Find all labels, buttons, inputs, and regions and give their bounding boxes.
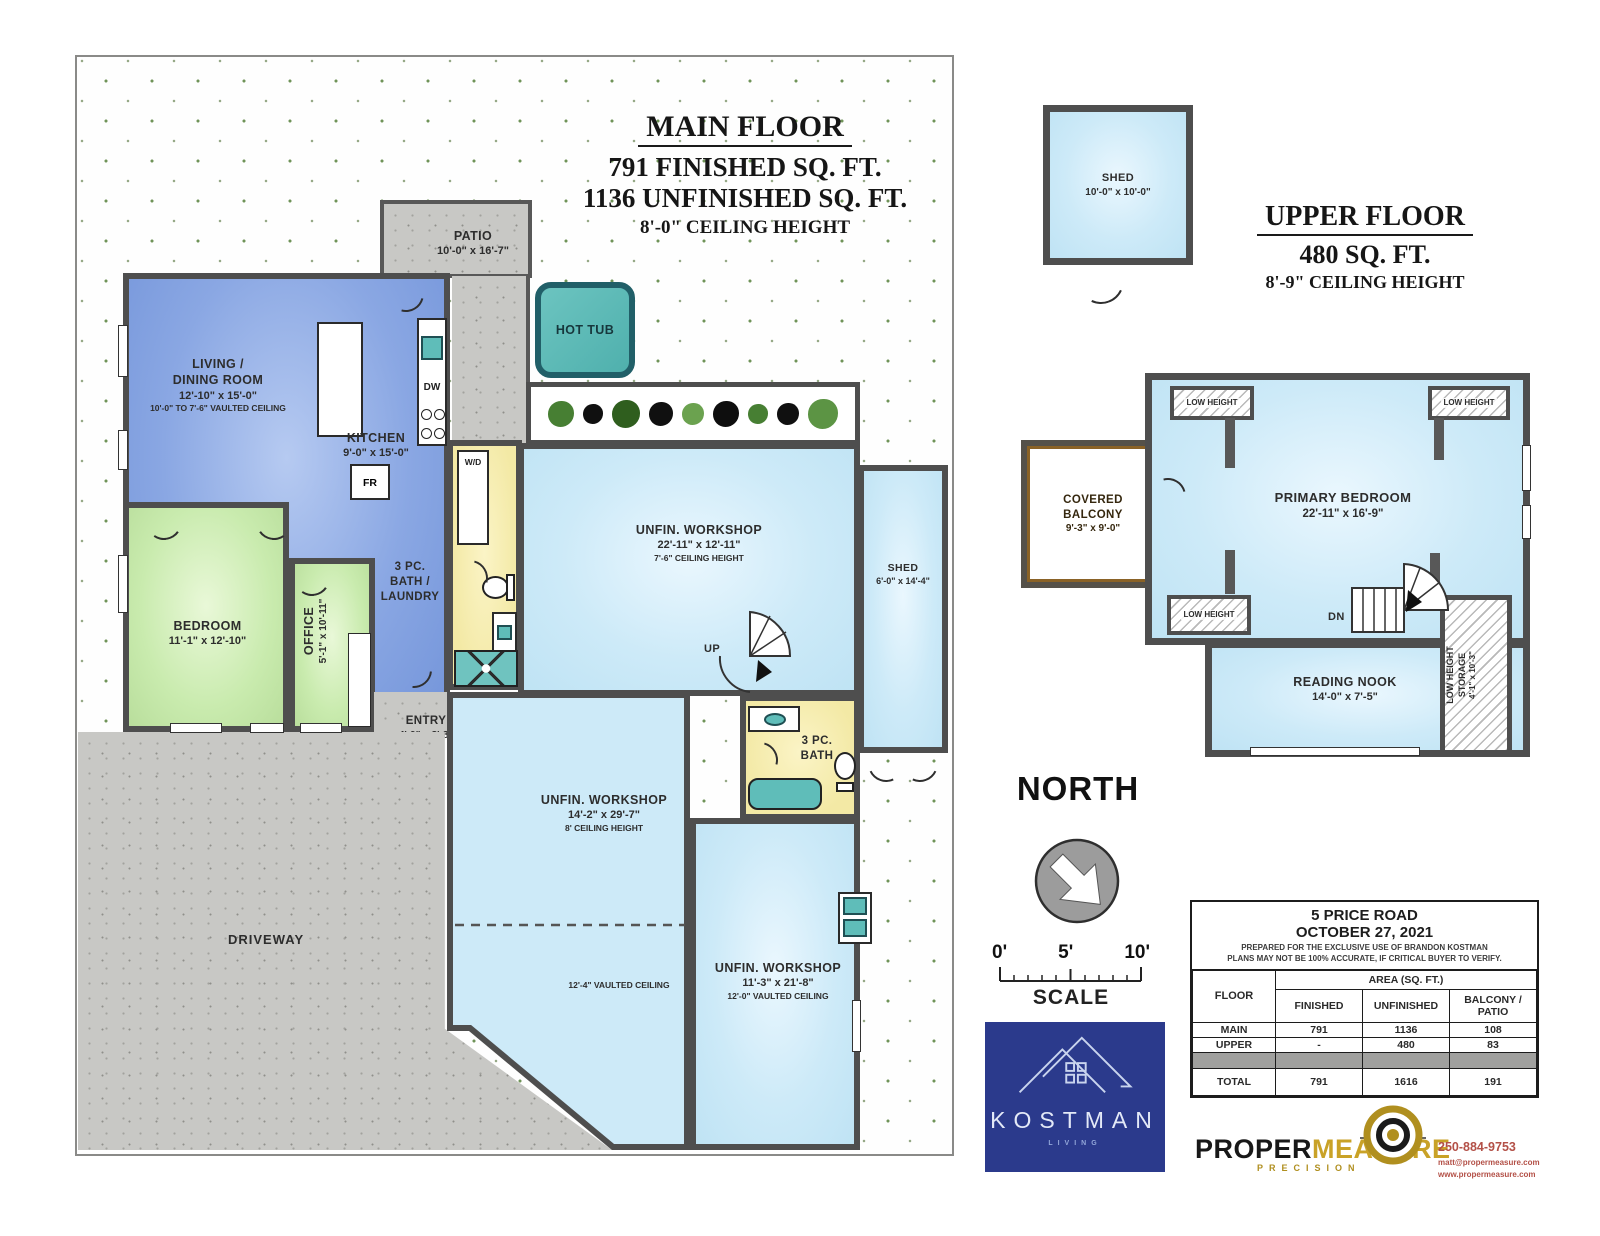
email-address: matt@propermeasure.com [1438,1157,1540,1169]
shed-main-label: SHED 6'-0" x 14'-4" [860,562,946,587]
scale-label: SCALE [992,986,1150,1010]
bedroom-label: BEDROOM 11'-1" x 12'-10" [155,618,260,649]
fridge: FR [350,464,390,500]
patio-label: PATIO 10'-0" x 16'-7" [408,228,538,259]
website-url: www.propermeasure.com [1438,1169,1540,1181]
scale-10: 10' [1124,942,1150,964]
table-row: TOTAL 791 1616 191 [1193,1068,1537,1095]
window [1522,445,1531,491]
office-closet [348,633,371,727]
plant-icon [612,400,640,428]
main-floor-unfinished: 1136 UNFINISHED SQ. FT. [545,183,945,214]
low-height-storage-label: LOW HEIGHT STORAGE 4'-1" x 10'-3" [1445,600,1507,750]
plant-icon [583,404,603,424]
wall-stub [1225,550,1235,594]
address: 5 PRICE ROAD [1196,907,1533,924]
workshop-mid [447,692,690,1150]
plan-date: OCTOBER 27, 2021 [1196,924,1533,941]
scale-5: 5' [1058,942,1073,964]
info-table: 5 PRICE ROAD OCTOBER 27, 2021 PREPARED F… [1190,900,1539,1098]
info-table-header: 5 PRICE ROAD OCTOBER 27, 2021 PREPARED F… [1192,902,1537,970]
row-main-balcony: 108 [1450,1022,1537,1037]
plant-icon [808,399,838,429]
scale-0: 0' [992,942,1007,964]
dn-label: DN [1328,610,1345,624]
dishwasher-label: DW [418,382,446,393]
bath2-sink [748,706,800,732]
disclaimer-line1: PREPARED FOR THE EXCLUSIVE USE OF BRANDO… [1196,943,1533,954]
north-compass-icon [1032,836,1122,926]
kostman-name: KOSTMAN [985,1107,1165,1134]
kostman-sub: LIVING [985,1140,1165,1147]
workshop-low-label: UNFIN. WORKSHOP 11'-3" x 21'-8" 12'-0" V… [700,960,856,1002]
window [250,723,284,733]
low-height-area: LOW HEIGHT [1170,386,1254,420]
upper-floor-ceiling: 8'-9" CEILING HEIGHT [1215,272,1515,293]
primary-bedroom-label: PRIMARY BEDROOM 22'-11" x 16'-9" [1258,490,1428,522]
main-floor-title: MAIN FLOOR [545,110,945,147]
shed-main [858,465,948,753]
window [852,1000,861,1052]
row-total-finished: 791 [1276,1068,1363,1095]
kitchen-island [317,322,363,437]
propermeasure-contact: 250-884-9753 matt@propermeasure.com www.… [1438,1138,1540,1181]
row-upper-unfinished: 480 [1363,1037,1450,1052]
scale-bar [998,964,1143,984]
shower [454,650,518,687]
shed-upper: SHED 10'-0" x 10'-0" [1043,105,1193,265]
window [170,723,222,733]
scale-numbers: 0' 5' 10' [992,942,1150,964]
window [118,325,128,377]
target-icon [1358,1100,1428,1170]
workshop-top-label: UNFIN. WORKSHOP 22'-11" x 12'-11" 7'-6" … [618,522,780,564]
upper-floor-title: UPPER FLOOR [1215,201,1515,236]
main-floor-ceiling: 8'-0" CEILING HEIGHT [545,217,945,239]
washer-dryer: W/D [457,450,489,545]
bath2-label: 3 PC. BATH [786,734,848,764]
covered-balcony: COVERED BALCONY 9'-3" x 9'-0" [1021,440,1165,588]
workshop-window-box [843,897,867,915]
kitchen-sink [421,336,443,360]
col-finished: FINISHED [1276,989,1363,1022]
driveway-label: DRIVEWAY [228,932,304,949]
low-height-area: LOW HEIGHT [1167,595,1251,635]
row-main-floor: MAIN [1193,1022,1276,1037]
col-area: AREA (SQ. FT.) [1276,970,1537,989]
hot-tub: HOT TUB [535,282,635,378]
table-row: MAIN 791 1136 108 [1193,1022,1537,1037]
main-floor-title-block: MAIN FLOOR 791 FINISHED SQ. FT. 1136 UNF… [545,110,945,239]
table-separator-row [1193,1052,1537,1068]
workshop-mid-label: UNFIN. WORKSHOP 14'-2" x 29'-7" 8' CEILI… [528,792,680,834]
row-upper-finished: - [1276,1037,1363,1052]
reading-nook-label: READING NOOK 14'-0" x 7'-5" [1278,674,1412,705]
window [1250,747,1420,756]
up-label: UP [704,642,720,656]
row-main-finished: 791 [1276,1022,1363,1037]
row-upper-floor: UPPER [1193,1037,1276,1052]
row-total-unfinished: 1616 [1363,1068,1450,1095]
row-total-floor: TOTAL [1193,1068,1276,1095]
area-table: FLOOR AREA (SQ. FT.) FINISHED UNFINISHED… [1192,970,1537,1096]
workshop-window-box [843,919,867,937]
workshop-mid-vault-note: 12'-4" VAULTED CEILING [543,980,695,991]
plant-icon [649,402,673,426]
plant-icon [713,401,739,427]
floor-plan-canvas: MAIN FLOOR 791 FINISHED SQ. FT. 1136 UNF… [0,0,1600,1236]
low-height-area: LOW HEIGHT [1428,386,1510,420]
window [118,555,128,613]
workshop-top [518,443,860,696]
bath2-tub [748,778,822,810]
main-floor-finished: 791 FINISHED SQ. FT. [545,152,945,183]
window [118,430,128,470]
col-floor: FLOOR [1193,970,1276,1022]
table-row: UPPER - 480 83 [1193,1037,1537,1052]
row-main-unfinished: 1136 [1363,1022,1450,1037]
row-total-balcony: 191 [1450,1068,1537,1095]
roof-icon [1010,1032,1140,1102]
col-unfinished: UNFINISHED [1363,989,1450,1022]
propermeasure-proper: PROPER [1195,1134,1312,1164]
kostman-logo: KOSTMAN LIVING [985,1022,1165,1172]
plant-icon [748,404,768,424]
window [300,723,342,733]
patio-side-strip [452,276,530,446]
row-upper-balcony: 83 [1450,1037,1537,1052]
bath-laundry-label: 3 PC. BATH / LAUNDRY [376,560,444,605]
stairs-dn-icon [1350,552,1450,644]
upper-floor-title-block: UPPER FLOOR 480 SQ. FT. 8'-9" CEILING HE… [1215,201,1515,293]
spiral-stairs-up-icon [712,606,792,696]
bath2-toilet-base [836,782,854,792]
plant-icon [682,403,704,425]
phone-number: 250-884-9753 [1438,1138,1540,1157]
plant-icon [777,403,799,425]
upper-floor-area: 480 SQ. FT. [1215,240,1515,270]
living-room-label: LIVING / DINING ROOM 12'-10" x 15'-0" 10… [148,356,288,414]
toilet-tank [506,574,515,601]
bath-sink [492,612,517,652]
kitchen-label: KITCHEN 9'-0" x 15'-0" [330,430,422,461]
wall-stub [1225,418,1235,468]
disclaimer-line2: PLANS MAY NOT BE 100% ACCURATE, IF CRITI… [1196,954,1533,965]
wall-stub [1434,418,1444,460]
plant-icon [548,401,574,427]
window [1522,505,1531,539]
north-label: NORTH [1008,770,1148,808]
col-balcony: BALCONY / PATIO [1450,989,1537,1022]
garden-bed [526,382,860,445]
stove [420,408,446,440]
